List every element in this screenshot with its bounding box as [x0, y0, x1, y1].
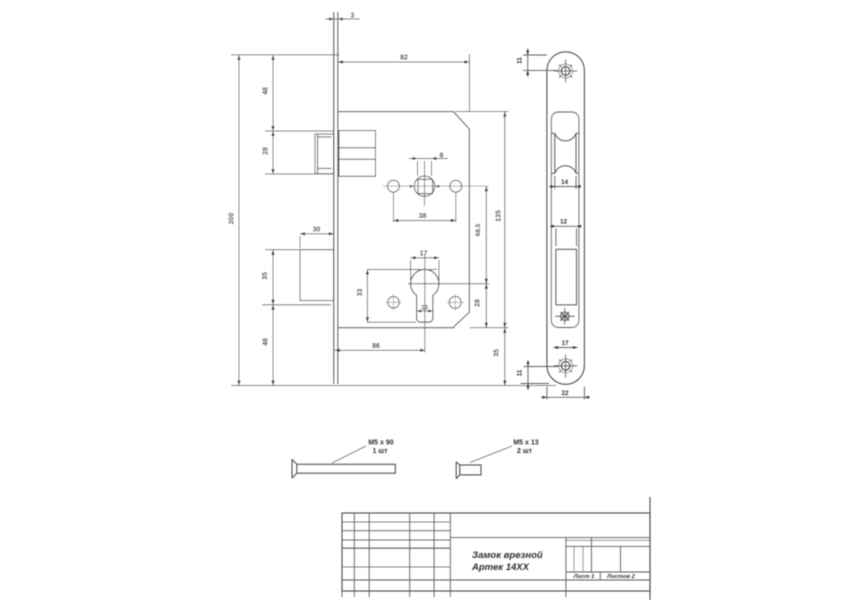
svg-text:28: 28 — [475, 299, 482, 307]
svg-text:135: 135 — [496, 210, 503, 222]
svg-text:М5 х 13: М5 х 13 — [513, 440, 538, 447]
svg-text:10: 10 — [421, 306, 428, 312]
svg-text:Замок врезной: Замок врезной — [472, 550, 543, 561]
svg-text:38: 38 — [419, 213, 427, 220]
svg-text:Артек 14ХХ: Артек 14ХХ — [471, 562, 530, 573]
svg-text:12: 12 — [560, 219, 568, 226]
svg-text:14: 14 — [561, 179, 569, 186]
svg-text:82: 82 — [400, 55, 408, 62]
svg-text:8: 8 — [440, 153, 444, 160]
svg-text:17: 17 — [420, 251, 428, 258]
svg-text:33: 33 — [357, 289, 364, 297]
svg-text:200: 200 — [229, 213, 236, 225]
svg-text:Листов 2: Листов 2 — [606, 574, 635, 580]
svg-text:17: 17 — [561, 340, 569, 347]
svg-text:30: 30 — [313, 227, 321, 234]
svg-text:86: 86 — [372, 343, 380, 350]
svg-text:22: 22 — [561, 390, 569, 397]
svg-text:2 шт: 2 шт — [517, 448, 533, 455]
svg-text:11: 11 — [517, 369, 524, 376]
svg-text:11: 11 — [517, 57, 524, 64]
svg-text:48: 48 — [263, 87, 270, 95]
svg-text:35: 35 — [494, 349, 501, 357]
svg-text:35: 35 — [262, 272, 269, 280]
svg-text:28: 28 — [263, 147, 270, 155]
svg-text:1 шт: 1 шт — [372, 448, 388, 455]
svg-text:3: 3 — [351, 13, 355, 20]
svg-text:68.5: 68.5 — [475, 223, 482, 236]
svg-text:Лист 1: Лист 1 — [573, 574, 595, 580]
svg-text:М5 х 90: М5 х 90 — [368, 440, 393, 447]
svg-text:48: 48 — [263, 338, 270, 346]
